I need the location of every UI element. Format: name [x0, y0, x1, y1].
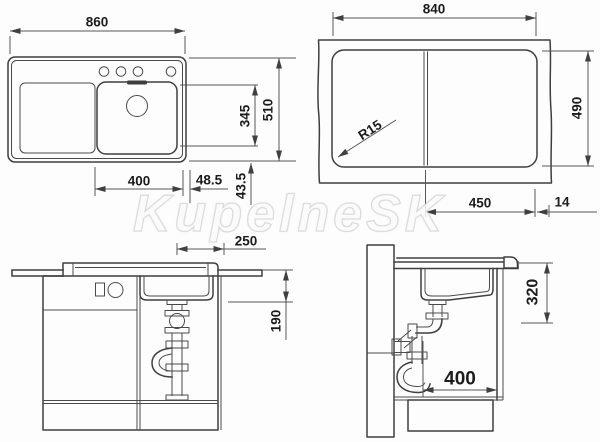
- dim-bowl-height-190: 190: [228, 270, 293, 340]
- dim-label-400: 400: [128, 174, 151, 189]
- worktop-right: [218, 270, 262, 276]
- knob: [108, 283, 123, 298]
- dim-label-490: 490: [570, 97, 585, 120]
- tap-hole: [116, 67, 126, 77]
- dim-label-840: 840: [423, 2, 446, 17]
- pipe-nut: [166, 341, 188, 348]
- siphon-side: [392, 300, 448, 393]
- dim-label-48-5: 48.5: [196, 173, 223, 188]
- dim-drain-250: 250: [177, 234, 266, 256]
- trap-bend: [397, 362, 430, 393]
- dim-label-400-side: 400: [444, 369, 476, 390]
- siphon-front: [152, 300, 189, 400]
- overflow-slot: [127, 81, 147, 85]
- dim-cutout-width-840: 840: [333, 2, 536, 37]
- worktop-left: [12, 270, 63, 276]
- dim-label-345: 345: [238, 104, 253, 127]
- plinth: [408, 400, 493, 431]
- dim-label-190: 190: [269, 310, 284, 333]
- sink-rim-profile: [63, 263, 218, 276]
- worktop-side: [394, 262, 518, 269]
- tap-hole: [99, 67, 109, 77]
- wall-pipe: [394, 342, 410, 353]
- plan-view: 860 345 510 43.5 400 48.5: [8, 15, 296, 206]
- dim-bowl-bottom: 400 48.5: [95, 167, 228, 203]
- pipe-nut: [166, 364, 188, 371]
- dim-label-320: 320: [525, 279, 542, 306]
- dim-cabinet-depth-400: 400: [423, 341, 497, 397]
- cutout-view: R15 840 490 450 14: [318, 2, 597, 218]
- elbow: [416, 319, 442, 333]
- pipe-nut: [426, 313, 448, 319]
- wall: [367, 245, 394, 437]
- bowl-side-inner: [425, 269, 490, 297]
- dim-label-860: 860: [86, 15, 109, 30]
- sink-technical-drawing: 860 345 510 43.5 400 48.5: [0, 0, 600, 442]
- pipe-nut: [407, 352, 427, 359]
- bowl: [97, 82, 177, 154]
- tap-hole: [133, 67, 143, 77]
- dim-label-14: 14: [554, 195, 570, 210]
- rim-end-cap: [504, 257, 518, 268]
- worktop-outline: [318, 40, 552, 183]
- trap-bend: [152, 348, 172, 377]
- technical-drawing-sheet: 860 345 510 43.5 400 48.5: [0, 0, 600, 442]
- drain-hole: [127, 96, 148, 117]
- dim-label-250: 250: [235, 234, 258, 249]
- drainboard: [20, 83, 95, 153]
- tap-hole: [166, 67, 176, 77]
- dim-corner-radius: R15: [338, 117, 396, 157]
- dim-label-r15: R15: [356, 117, 385, 143]
- handle-plate: [96, 283, 105, 296]
- side-view: 320 400: [367, 245, 553, 437]
- cabinet-outline: [43, 276, 218, 430]
- dim-edge-14: 14: [537, 195, 597, 218]
- bowl-section-inner: [144, 276, 209, 296]
- dim-label-510: 510: [261, 99, 276, 122]
- cutout-outline: [332, 50, 537, 167]
- dim-right-section-450: 450: [426, 170, 536, 217]
- dim-label-450: 450: [469, 196, 492, 211]
- dim-mounting-depth-320: 320: [519, 263, 553, 323]
- dim-label-43-5: 43.5: [234, 172, 249, 199]
- front-view: 250 190: [12, 234, 293, 431]
- dim-width-860: 860: [10, 15, 185, 55]
